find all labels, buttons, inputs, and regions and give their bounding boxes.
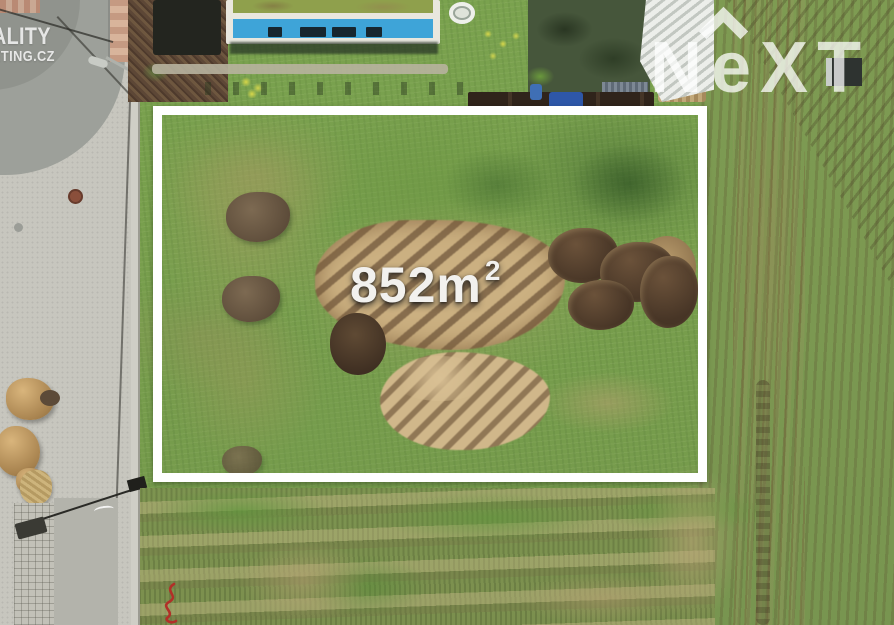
plot-area-value: 852m [350, 257, 482, 313]
watermark-left: ALITY ETING.CZ [0, 24, 66, 65]
aerial-photo: 852m2 ALITY ETING.CZ NeXT [0, 0, 894, 625]
dry-dirt-patch [645, 462, 740, 622]
brand-letter-x: X [760, 28, 817, 108]
green-patch [380, 492, 600, 544]
house-window [268, 27, 282, 37]
dry-dirt-patch [240, 540, 370, 622]
watermark-line2: ETING.CZ [0, 49, 55, 65]
drain-cover [14, 223, 23, 232]
yellow-flowers [478, 24, 528, 64]
watermark-line1: ALITY [0, 24, 53, 49]
blue-bin [530, 84, 542, 100]
hay-pile [20, 470, 52, 504]
black-mat [153, 0, 221, 55]
house-shadow [230, 42, 438, 54]
brand-letter-n: N [650, 28, 711, 108]
house-green-roof [233, 0, 433, 13]
dark-rock [40, 390, 60, 406]
driveway-strip [54, 498, 118, 625]
brand-letter-t: T [817, 28, 870, 108]
trampoline-ring [449, 2, 475, 24]
red-spray-mark [156, 581, 186, 625]
manhole-cover [68, 189, 83, 204]
plot-area-superscript: 2 [485, 255, 502, 286]
house-window [300, 27, 326, 37]
house-window [332, 27, 356, 37]
brick-strip [108, 0, 130, 62]
shrub-row [205, 82, 465, 95]
brand-logo: NeXT [650, 32, 870, 104]
garden-path [152, 64, 448, 74]
green-patch [150, 488, 330, 534]
house-window [366, 27, 382, 37]
plot-area-label: 852m2 [350, 256, 501, 314]
